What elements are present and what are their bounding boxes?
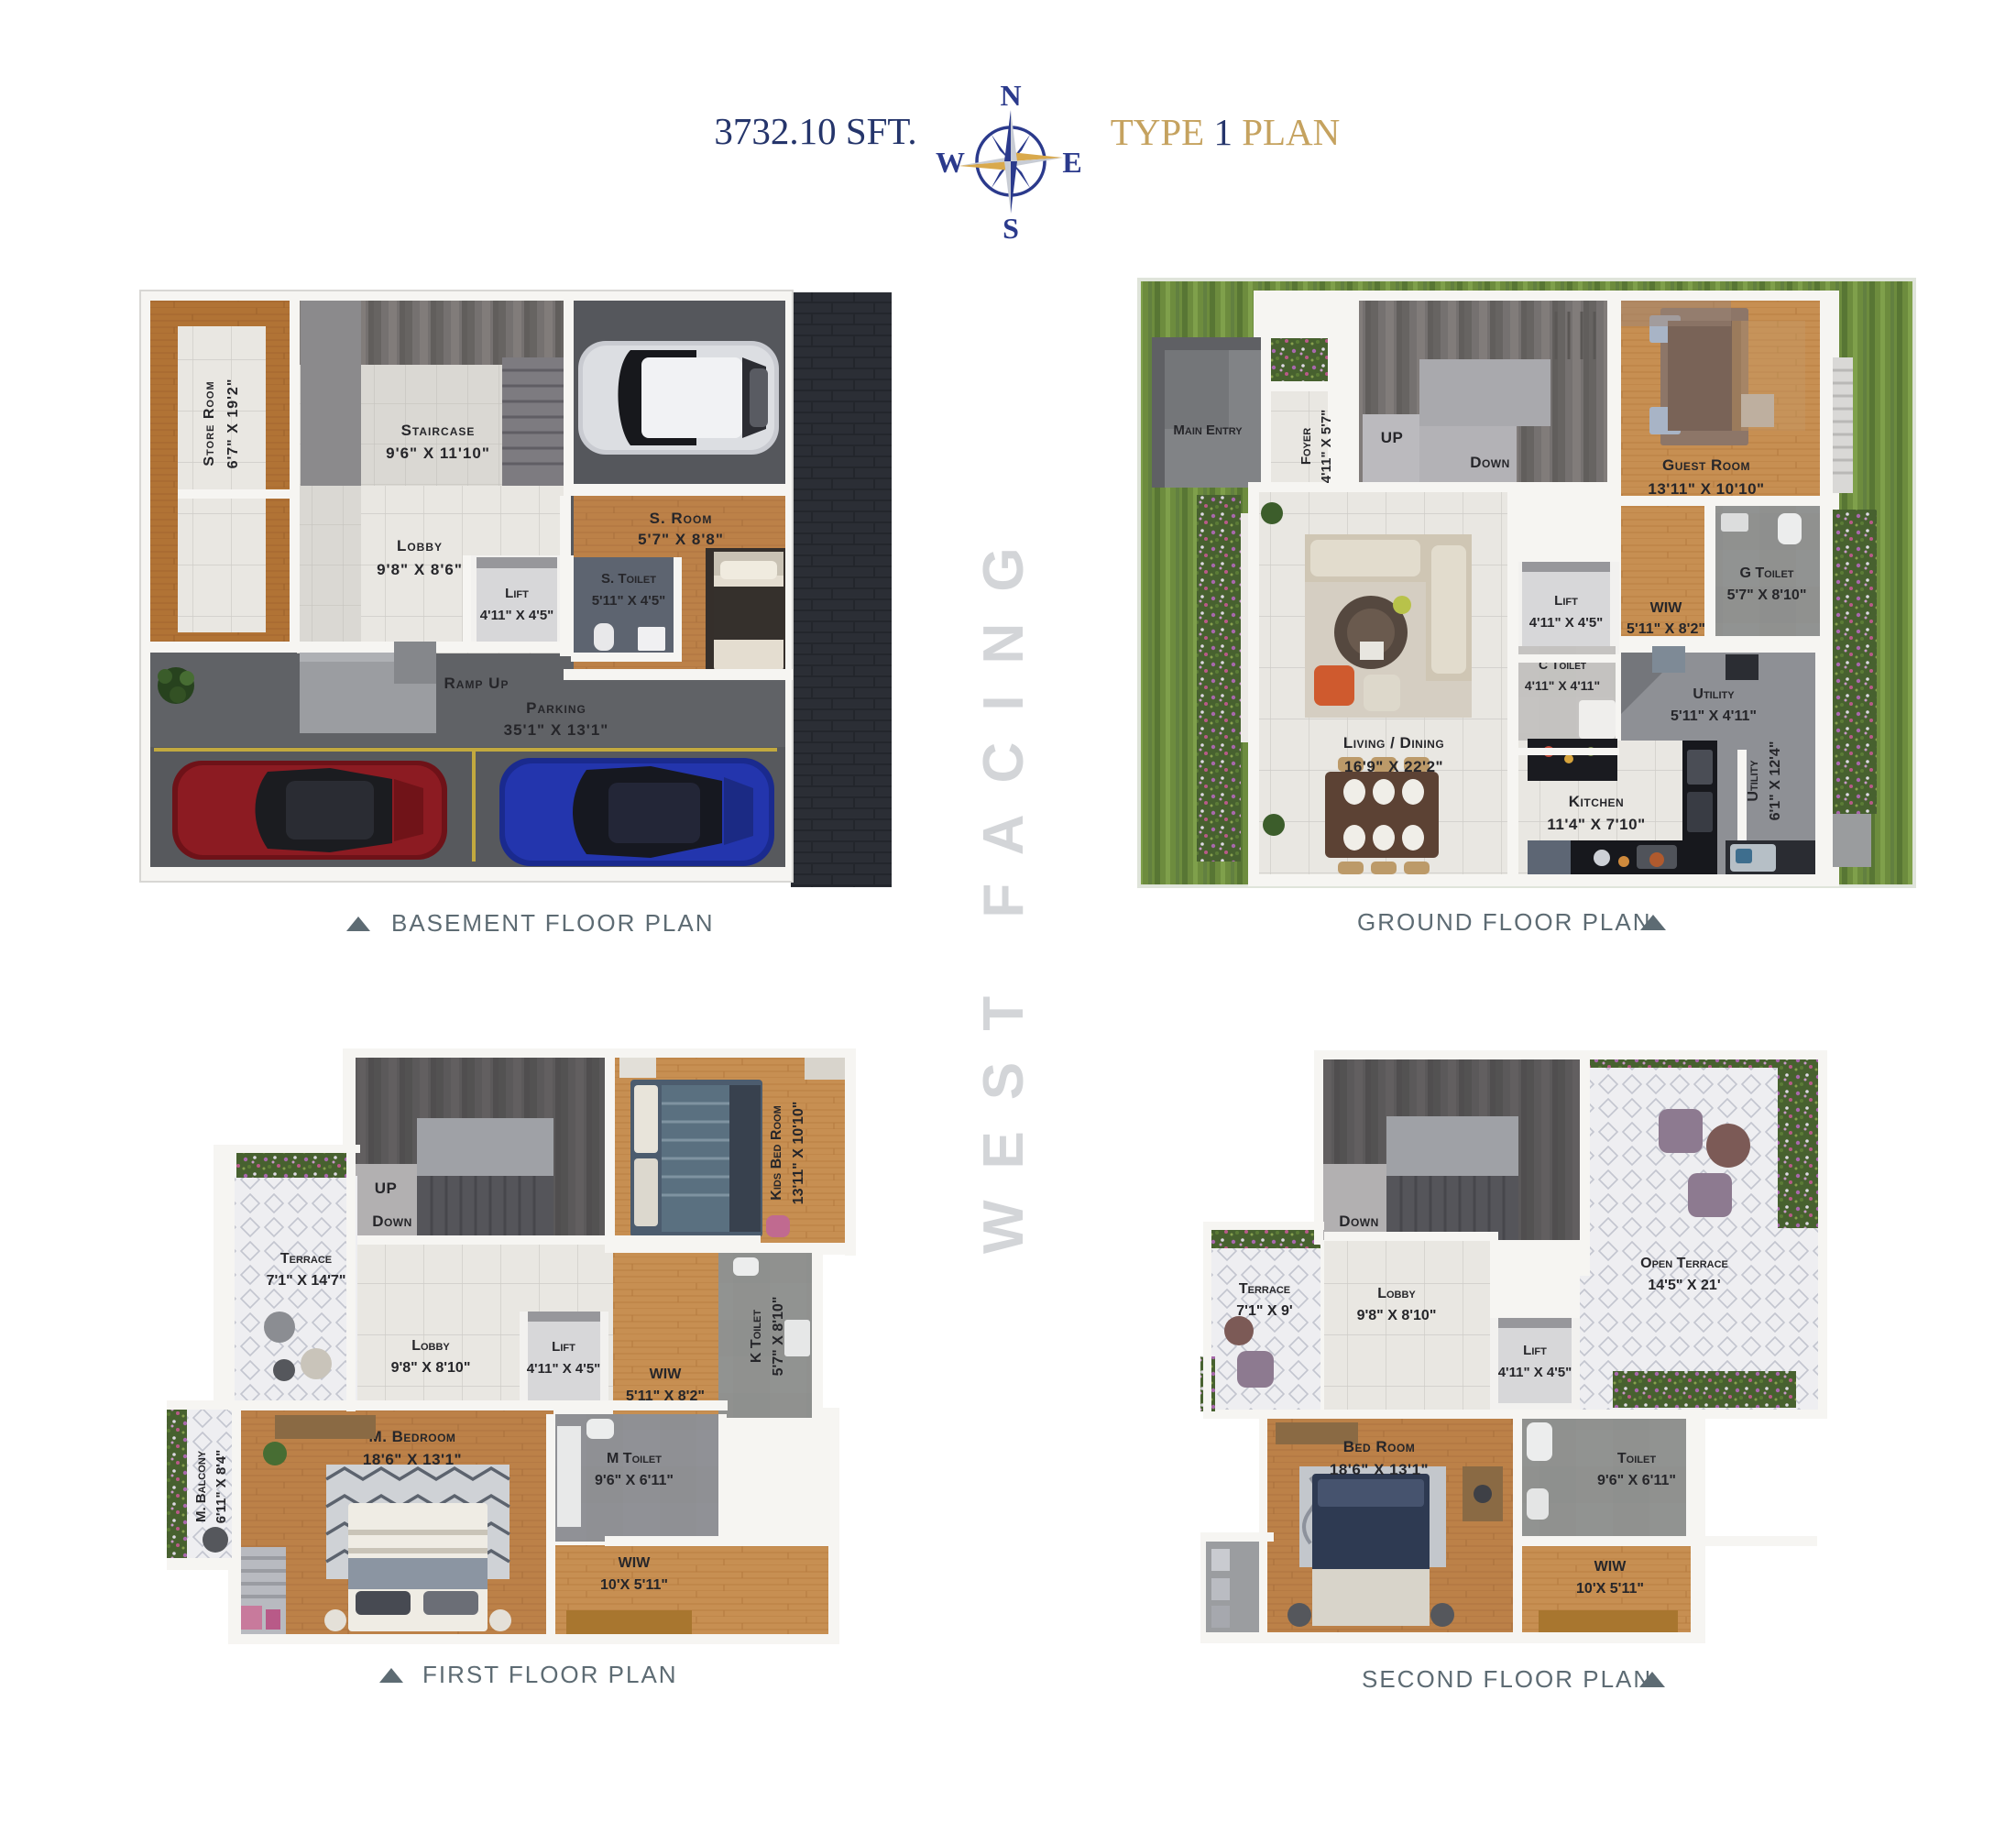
svg-text:GROUND FLOOR PLAN: GROUND FLOOR PLAN <box>1357 908 1652 936</box>
svg-text:16'9" X 22'2": 16'9" X 22'2" <box>1344 758 1443 775</box>
svg-text:Terrace: Terrace <box>1239 1281 1290 1297</box>
svg-text:7'1" X 14'7": 7'1" X 14'7" <box>267 1273 346 1289</box>
svg-text:G Toilet: G Toilet <box>1739 565 1793 581</box>
svg-text:Lift: Lift <box>505 586 529 601</box>
svg-text:Staircase: Staircase <box>401 422 476 439</box>
svg-text:Foyer: Foyer <box>1298 428 1314 465</box>
svg-text:Lift: Lift <box>1554 593 1578 609</box>
svg-text:UP: UP <box>375 1180 398 1197</box>
svg-text:5'7" X 8'8": 5'7" X 8'8" <box>638 531 724 548</box>
svg-text:9'8" X 8'10": 9'8" X 8'10" <box>1357 1308 1437 1323</box>
svg-text:M. Bedroom: M. Bedroom <box>369 1428 456 1445</box>
svg-text:TYPE 1 PLAN: TYPE 1 PLAN <box>1111 111 1341 153</box>
svg-text:S. Room: S. Room <box>650 510 713 527</box>
svg-text:Down: Down <box>1339 1213 1379 1230</box>
svg-text:10'X 5'11": 10'X 5'11" <box>1576 1581 1644 1597</box>
svg-text:13'11" X 10'10": 13'11" X 10'10" <box>1648 480 1764 498</box>
svg-text:WEST FACING: WEST FACING <box>972 516 1035 1254</box>
svg-text:35'1" X 13'1": 35'1" X 13'1" <box>504 721 609 739</box>
svg-text:WIW: WIW <box>1650 600 1683 616</box>
svg-text:9'8" X 8'10": 9'8" X 8'10" <box>391 1360 471 1376</box>
svg-text:14'5" X 21': 14'5" X 21' <box>1648 1278 1720 1293</box>
svg-text:SECOND FLOOR PLAN: SECOND FLOOR PLAN <box>1362 1665 1652 1693</box>
svg-text:Toilet: Toilet <box>1617 1451 1656 1466</box>
svg-text:4'11" X 4'5": 4'11" X 4'5" <box>1498 1365 1572 1380</box>
svg-text:6'7" X 19'2": 6'7" X 19'2" <box>225 379 241 469</box>
svg-text:Utility: Utility <box>1693 686 1735 702</box>
svg-text:3732.10 SFT.: 3732.10 SFT. <box>714 110 916 152</box>
svg-text:11'4" X 7'10": 11'4" X 7'10" <box>1547 816 1645 833</box>
svg-text:Kids Bed Room: Kids Bed Room <box>769 1105 784 1200</box>
svg-text:13'11" X 10'10": 13'11" X 10'10" <box>791 1102 806 1205</box>
svg-text:6'1" X 12'4": 6'1" X 12'4" <box>1768 741 1783 821</box>
svg-text:5'11" X 8'2": 5'11" X 8'2" <box>1627 621 1705 637</box>
svg-text:Down: Down <box>372 1213 412 1230</box>
svg-text:UP: UP <box>1381 429 1404 446</box>
svg-text:S: S <box>1003 212 1019 245</box>
svg-text:Utility: Utility <box>1746 760 1761 802</box>
svg-text:Lobby: Lobby <box>411 1338 450 1354</box>
svg-text:Lobby: Lobby <box>397 537 443 554</box>
svg-text:Lift: Lift <box>552 1339 575 1355</box>
svg-text:Down: Down <box>1470 454 1510 471</box>
svg-text:Lift: Lift <box>1523 1343 1547 1358</box>
svg-text:K Toilet: K Toilet <box>749 1310 764 1363</box>
svg-text:E: E <box>1062 146 1081 179</box>
svg-text:BASEMENT FLOOR PLAN: BASEMENT FLOOR PLAN <box>391 909 715 937</box>
svg-text:Lobby: Lobby <box>1377 1286 1416 1301</box>
svg-text:Living / Dining: Living / Dining <box>1343 734 1444 752</box>
svg-text:Parking: Parking <box>526 699 586 717</box>
svg-text:Bed Room: Bed Room <box>1343 1438 1416 1455</box>
svg-text:Terrace: Terrace <box>280 1251 332 1267</box>
svg-text:W: W <box>936 146 965 179</box>
svg-text:FIRST FLOOR PLAN: FIRST FLOOR PLAN <box>422 1661 678 1688</box>
svg-text:Guest Room: Guest Room <box>1662 456 1750 474</box>
svg-text:WIW: WIW <box>619 1555 652 1571</box>
svg-text:9'8" X 8'6": 9'8" X 8'6" <box>377 561 463 578</box>
svg-text:4'11" X 4'5": 4'11" X 4'5" <box>527 1361 601 1377</box>
svg-text:M Toilet: M Toilet <box>607 1451 662 1466</box>
svg-text:4'11" X 5'7": 4'11" X 5'7" <box>1319 410 1334 484</box>
svg-text:N: N <box>1000 79 1021 112</box>
svg-text:4'11" X 4'11": 4'11" X 4'11" <box>1525 678 1600 693</box>
svg-text:5'11" X 4'5": 5'11" X 4'5" <box>592 593 666 609</box>
svg-text:Open Terrace: Open Terrace <box>1640 1256 1728 1271</box>
svg-text:9'6" X 6'11": 9'6" X 6'11" <box>595 1473 674 1488</box>
svg-text:5'11" X 4'11": 5'11" X 4'11" <box>1671 708 1757 724</box>
svg-text:18'6" X 13'1": 18'6" X 13'1" <box>1330 1461 1429 1478</box>
svg-text:7'1" X 9': 7'1" X 9' <box>1236 1303 1292 1319</box>
svg-text:10'X 5'11": 10'X 5'11" <box>600 1577 668 1593</box>
svg-text:S. Toilet: S. Toilet <box>601 571 656 587</box>
svg-text:6'11" X 8'4": 6'11" X 8'4" <box>214 1450 229 1524</box>
svg-text:WIW: WIW <box>650 1367 683 1382</box>
svg-text:5'7" X 8'10": 5'7" X 8'10" <box>1727 587 1807 603</box>
svg-text:M. Balcony: M. Balcony <box>193 1450 209 1522</box>
svg-text:4'11" X 4'5": 4'11" X 4'5" <box>1529 615 1604 631</box>
svg-text:9'6" X 6'11": 9'6" X 6'11" <box>1597 1473 1676 1488</box>
svg-text:Ramp Up: Ramp Up <box>444 675 509 692</box>
svg-text:5'7" X 8'10": 5'7" X 8'10" <box>771 1297 786 1377</box>
svg-text:4'11" X 4'5": 4'11" X 4'5" <box>480 608 554 623</box>
svg-text:Kitchen: Kitchen <box>1569 793 1624 810</box>
svg-text:Main Entry: Main Entry <box>1173 423 1243 438</box>
svg-text:9'6" X 11'10": 9'6" X 11'10" <box>386 445 490 462</box>
svg-text:Store Room: Store Room <box>202 380 217 466</box>
svg-text:WIW: WIW <box>1594 1559 1627 1575</box>
